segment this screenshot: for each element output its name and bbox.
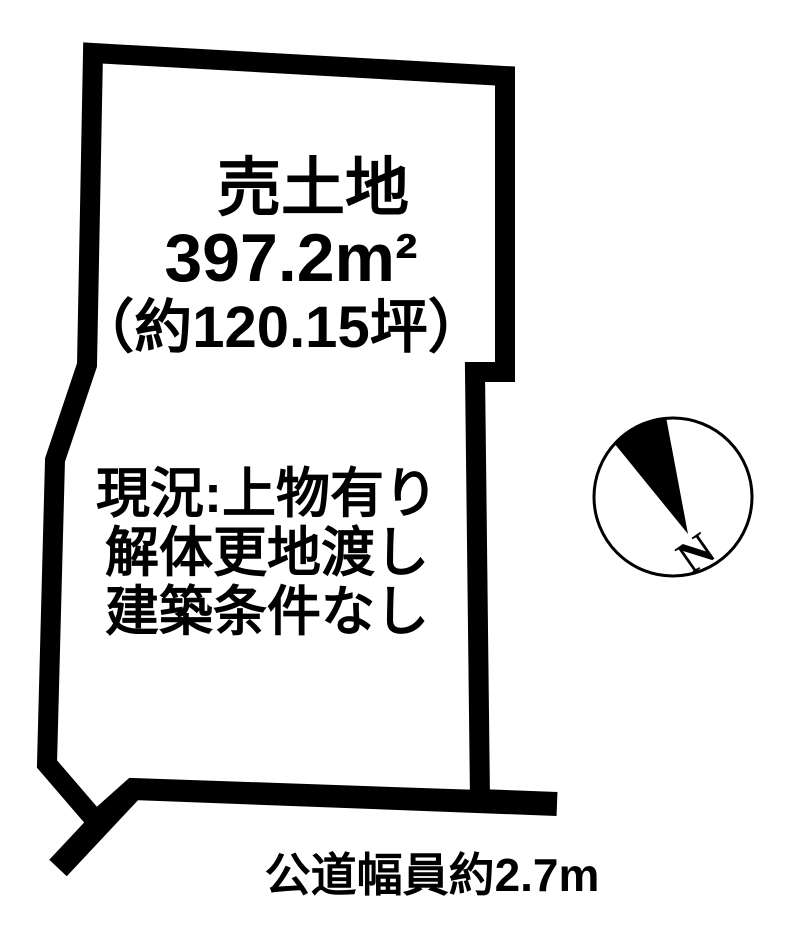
plot-status-line-3: 建築条件なし xyxy=(105,582,429,642)
plot-title: 売土地 xyxy=(217,152,409,224)
plot-area-tsubo: （約120.15坪） xyxy=(76,295,485,360)
plot-status-line-1: 現況:上物有り xyxy=(96,464,438,524)
site-plan-svg: 売土地 397.2m² （約120.15坪） 現況:上物有り 解体更地渡し 建築… xyxy=(0,0,809,940)
compass: N xyxy=(594,417,752,583)
plot-status-line-2: 解体更地渡し xyxy=(105,523,429,583)
plot-area-m2: 397.2m² xyxy=(164,220,417,296)
road-width-label: 公道幅員約2.7m xyxy=(265,849,600,901)
land-plot-diagram: 売土地 397.2m² （約120.15坪） 現況:上物有り 解体更地渡し 建築… xyxy=(0,0,809,940)
